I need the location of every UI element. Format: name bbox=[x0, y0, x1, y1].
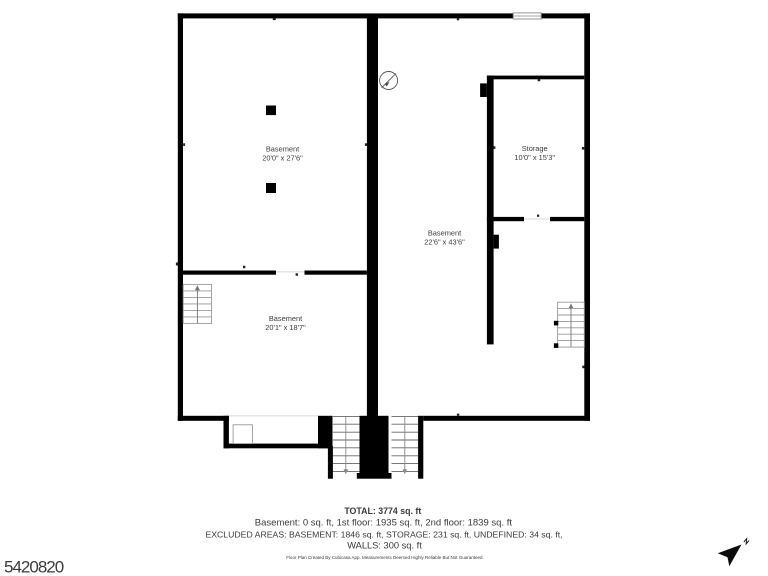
svg-text:TOTAL: 3774 sq. ft: TOTAL: 3774 sq. ft bbox=[344, 506, 421, 516]
svg-text:Basement: Basement bbox=[266, 144, 299, 153]
svg-text:Basement: 0 sq. ft, 1st floor:: Basement: 0 sq. ft, 1st floor: 1935 sq. … bbox=[255, 518, 513, 529]
svg-text:22'6" x 43'6": 22'6" x 43'6" bbox=[424, 238, 465, 247]
svg-text:5420820: 5420820 bbox=[4, 557, 64, 576]
svg-text:10'0" x 15'3": 10'0" x 15'3" bbox=[514, 153, 555, 162]
svg-text:Floor Plan Created By Cubicasa: Floor Plan Created By Cubicasa App. Meas… bbox=[286, 555, 484, 560]
svg-text:Basement: Basement bbox=[269, 314, 302, 323]
svg-text:20'1" x 18'7": 20'1" x 18'7" bbox=[265, 323, 306, 332]
svg-text:Basement: Basement bbox=[428, 229, 461, 238]
svg-text:20'0" x 27'6": 20'0" x 27'6" bbox=[262, 153, 303, 162]
svg-text:Storage: Storage bbox=[522, 144, 548, 153]
svg-text:WALLS: 300 sq. ft: WALLS: 300 sq. ft bbox=[347, 541, 422, 551]
svg-text:EXCLUDED AREAS: BASEMENT: 1846: EXCLUDED AREAS: BASEMENT: 1846 sq. ft, S… bbox=[205, 529, 562, 539]
